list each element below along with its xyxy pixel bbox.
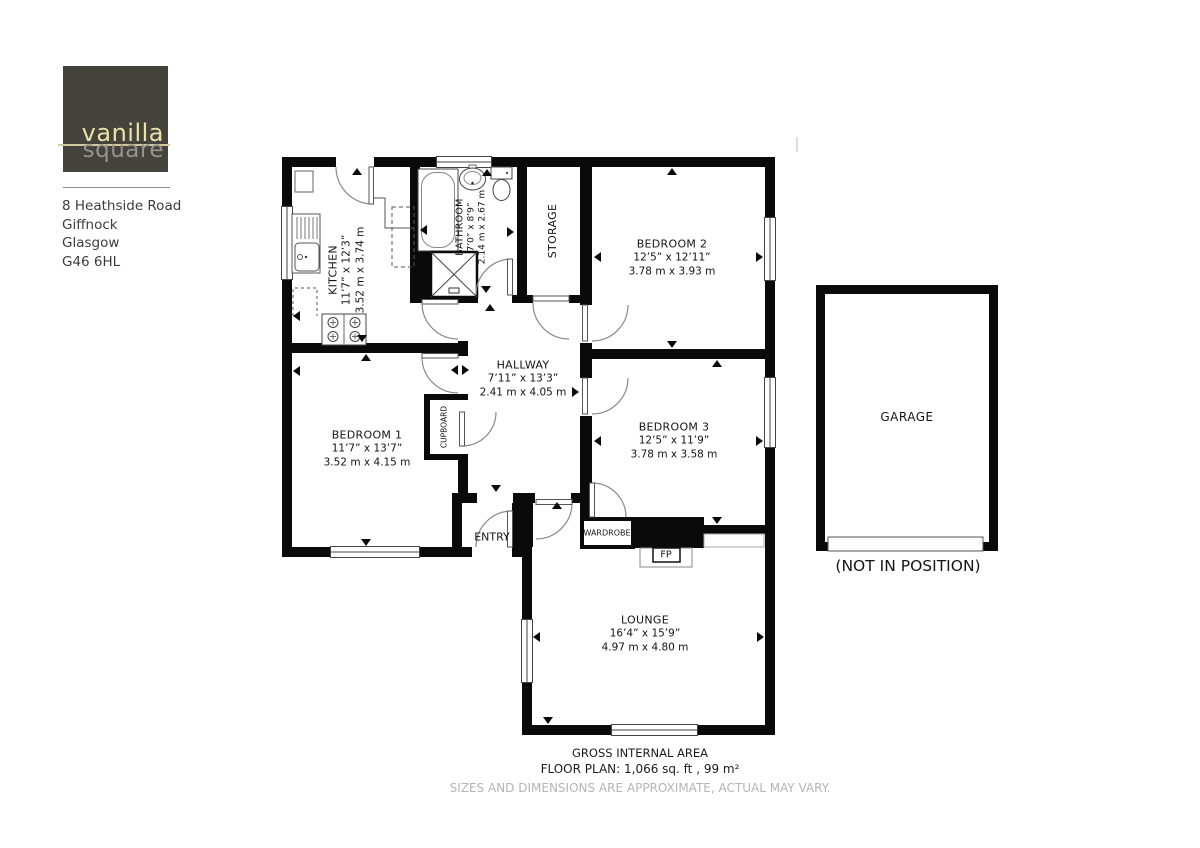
- bedroom3-door-arc: [592, 378, 628, 414]
- bedroom1-door-arc: [422, 357, 458, 393]
- kitchen-unit: [295, 171, 313, 192]
- measurement-arrow: [756, 436, 763, 446]
- label-cupboard: CUPBOARD: [440, 406, 449, 448]
- measurement-arrow: [712, 360, 722, 367]
- room-label-bedroom-1: BEDROOM 1 11’7” x 13’7” 3.52 m x 4.15 m: [324, 429, 411, 470]
- footer: GROSS INTERNAL AREA FLOOR PLAN: 1,066 sq…: [400, 746, 880, 796]
- measurement-arrow: [543, 717, 553, 724]
- label-entry: ENTRY: [474, 531, 510, 544]
- measurement-arrow: [594, 252, 601, 262]
- appliance-dashed-2: [293, 288, 317, 316]
- room-label-bedroom-3: BEDROOM 3 12’5” x 11’9” 3.78 m x 3.58 m: [631, 421, 718, 462]
- label-wardrobe: WARDROBE: [583, 529, 630, 538]
- gross-internal-area: GROSS INTERNAL AREA: [400, 746, 880, 761]
- kitchen-hall-door-arc: [422, 303, 458, 339]
- measurement-arrow: [361, 539, 371, 546]
- measurement-arrow: [451, 365, 458, 375]
- floor-plan-area: FLOOR PLAN: 1,066 sq. ft , 99 m²: [400, 761, 880, 777]
- room-label-lounge: LOUNGE 16’4” x 15’9” 4.97 m x 4.80 m: [602, 614, 689, 655]
- disclaimer: SIZES AND DIMENSIONS ARE APPROXIMATE, AC…: [400, 780, 880, 796]
- room-label-storage: STORAGE: [546, 204, 560, 258]
- kitchen-door-leaf: [369, 167, 374, 204]
- measurement-arrow: [533, 632, 540, 642]
- label-garage: GARAGE: [880, 410, 933, 424]
- measurement-arrow: [485, 304, 495, 311]
- measurement-arrow: [594, 436, 601, 446]
- storage-door-arc: [533, 303, 569, 339]
- measurement-arrow: [667, 341, 677, 348]
- room-label-kitchen: KITCHEN 11’7” x 12’3” 3.52 m x 3.74 m: [327, 227, 368, 314]
- toilet: [491, 167, 512, 201]
- bedroom2-door-arc: [592, 305, 628, 341]
- room-label-hallway: HALLWAY 7’11” x 13’3” 2.41 m x 4.05 m: [480, 359, 567, 400]
- basin: [460, 165, 486, 190]
- hob: [322, 314, 366, 345]
- measurement-arrow: [667, 168, 677, 175]
- label-garage-note: (NOT IN POSITION): [835, 557, 980, 575]
- measurement-arrow: [491, 485, 501, 492]
- measurement-arrow: [712, 517, 722, 524]
- room-label-bathroom: BATHROOM 7’0” x 8’9” 2.14 m x 2.67 m: [454, 190, 488, 264]
- bathtub: [418, 169, 458, 251]
- measurement-arrow: [293, 311, 300, 321]
- measurement-arrow: [507, 227, 514, 237]
- alcove: [704, 534, 764, 547]
- measurement-arrow: [756, 252, 763, 262]
- measurement-arrow: [481, 286, 491, 293]
- room-label-bedroom-2: BEDROOM 2 12’5” x 12’11” 3.78 m x 3.93 m: [629, 238, 716, 279]
- sink-unit: [292, 214, 320, 273]
- measurement-arrow: [361, 354, 371, 361]
- measurement-arrow: [572, 387, 579, 397]
- bathroom-door-arc: [476, 259, 512, 295]
- floor-plan-page: vanilla square 8 Heathside Road Giffnock…: [0, 0, 1200, 848]
- garage-door: [828, 537, 983, 551]
- floor-plan-drawing: [0, 0, 1200, 848]
- label-fp: FP: [660, 550, 671, 561]
- wardrobe-door-arc: [592, 483, 626, 517]
- measurement-arrow: [293, 366, 300, 376]
- measurement-arrow: [352, 168, 362, 175]
- measurement-arrow: [757, 632, 764, 642]
